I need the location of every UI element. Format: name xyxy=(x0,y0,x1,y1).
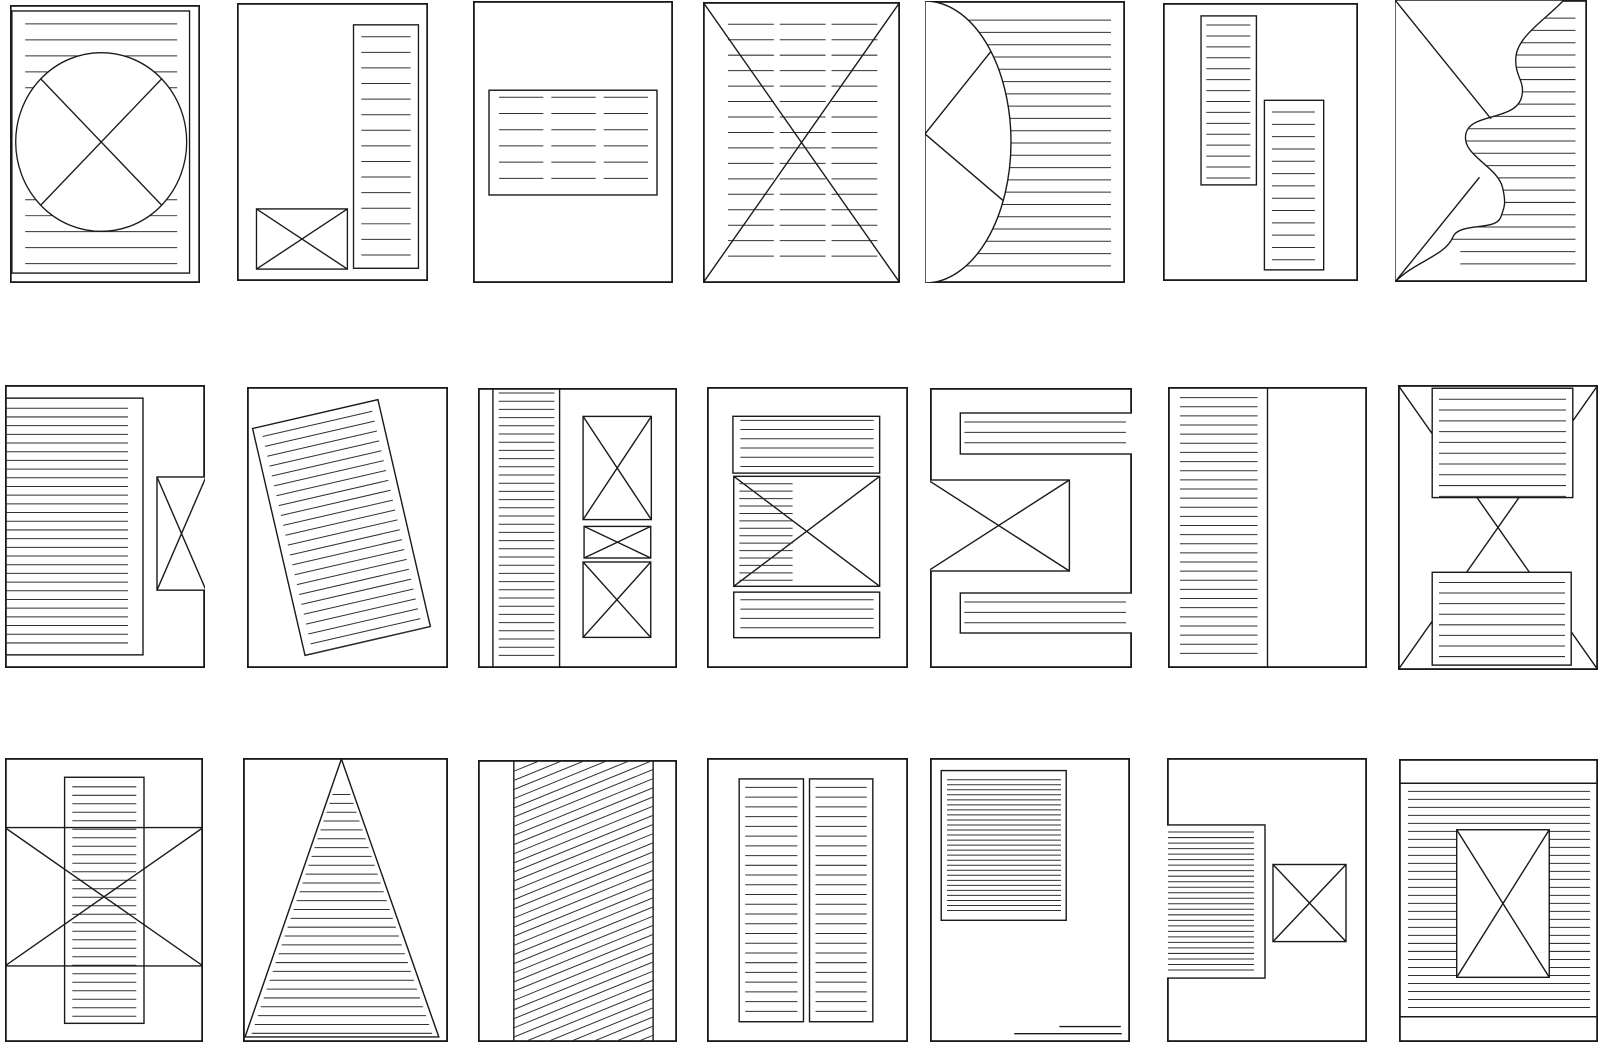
layout-thumbnail-diagonal-hatched-band xyxy=(478,760,677,1042)
layout-thumbnail-centered-table xyxy=(473,1,673,283)
layout-thumbnail-alternating-bleed-text-and-image xyxy=(930,388,1132,668)
layout-thumbnail-left-bleed-text-with-square-image xyxy=(1167,758,1367,1042)
page-drawing xyxy=(1395,0,1587,282)
page-drawing xyxy=(478,760,677,1042)
layout-thumbnail-crossed-band-with-vertical-text-column xyxy=(5,758,203,1042)
layout-thumbnail-two-text-columns xyxy=(707,758,908,1042)
layout-sheet xyxy=(0,0,1600,1043)
page-drawing xyxy=(925,1,1125,283)
layout-thumbnail-three-column-text-crossed-out xyxy=(703,2,900,283)
layout-thumbnail-triangle-text xyxy=(243,758,448,1042)
layout-thumbnail-text-image-text-stack xyxy=(707,387,908,668)
layout-thumbnail-full-bleed-text-with-right-image xyxy=(5,385,205,668)
page-drawing xyxy=(930,388,1132,668)
page-drawing xyxy=(478,388,677,668)
layout-thumbnail-rotated-text-block xyxy=(247,387,448,668)
layout-thumbnail-two-staggered-text-columns xyxy=(1163,3,1358,281)
page-drawing xyxy=(247,387,448,668)
layout-thumbnail-wave-divided-image-and-text xyxy=(1395,0,1587,282)
page-drawing xyxy=(473,1,673,283)
page-drawing xyxy=(707,758,908,1042)
page-drawing xyxy=(243,758,448,1042)
page-drawing xyxy=(930,758,1130,1042)
page-drawing xyxy=(1168,387,1367,668)
layout-thumbnail-circle-image-over-text xyxy=(10,5,200,283)
layout-thumbnail-dense-text-block-with-signature-lines xyxy=(930,758,1130,1042)
page-drawing xyxy=(703,2,900,283)
page-drawing xyxy=(237,3,428,281)
page-drawing xyxy=(1167,758,1367,1042)
page-drawing xyxy=(1399,759,1598,1042)
page-drawing xyxy=(5,758,203,1042)
page-drawing xyxy=(5,385,205,668)
layout-thumbnail-text-wrapped-around-center-image xyxy=(1399,759,1598,1042)
page-drawing xyxy=(1163,3,1358,281)
page-drawing xyxy=(707,387,908,668)
layout-thumbnail-left-half-text-column xyxy=(1168,387,1367,668)
page-drawing xyxy=(10,5,200,283)
layout-thumbnail-half-disc-with-contoured-text xyxy=(925,1,1125,283)
layout-thumbnail-right-column-text-with-small-image xyxy=(237,3,428,281)
layout-thumbnail-crossed-page-with-two-text-blocks xyxy=(1398,385,1598,670)
page-drawing xyxy=(1398,385,1598,670)
layout-thumbnail-sidebar-text-with-three-images xyxy=(478,388,677,668)
